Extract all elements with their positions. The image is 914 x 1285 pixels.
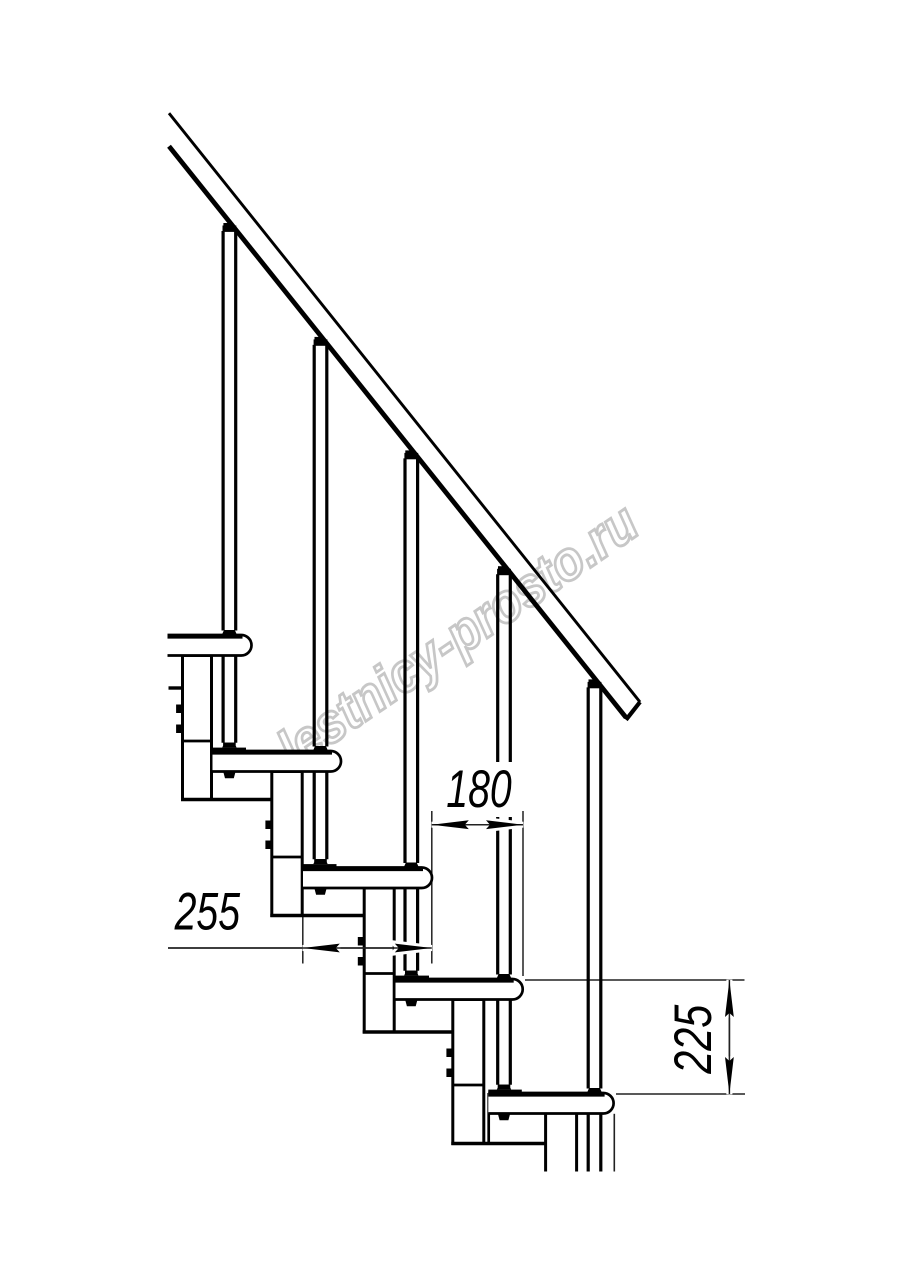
svg-text:225: 225 [664,1004,723,1074]
svg-text:255: 255 [174,882,241,941]
svg-text:180: 180 [446,759,511,818]
